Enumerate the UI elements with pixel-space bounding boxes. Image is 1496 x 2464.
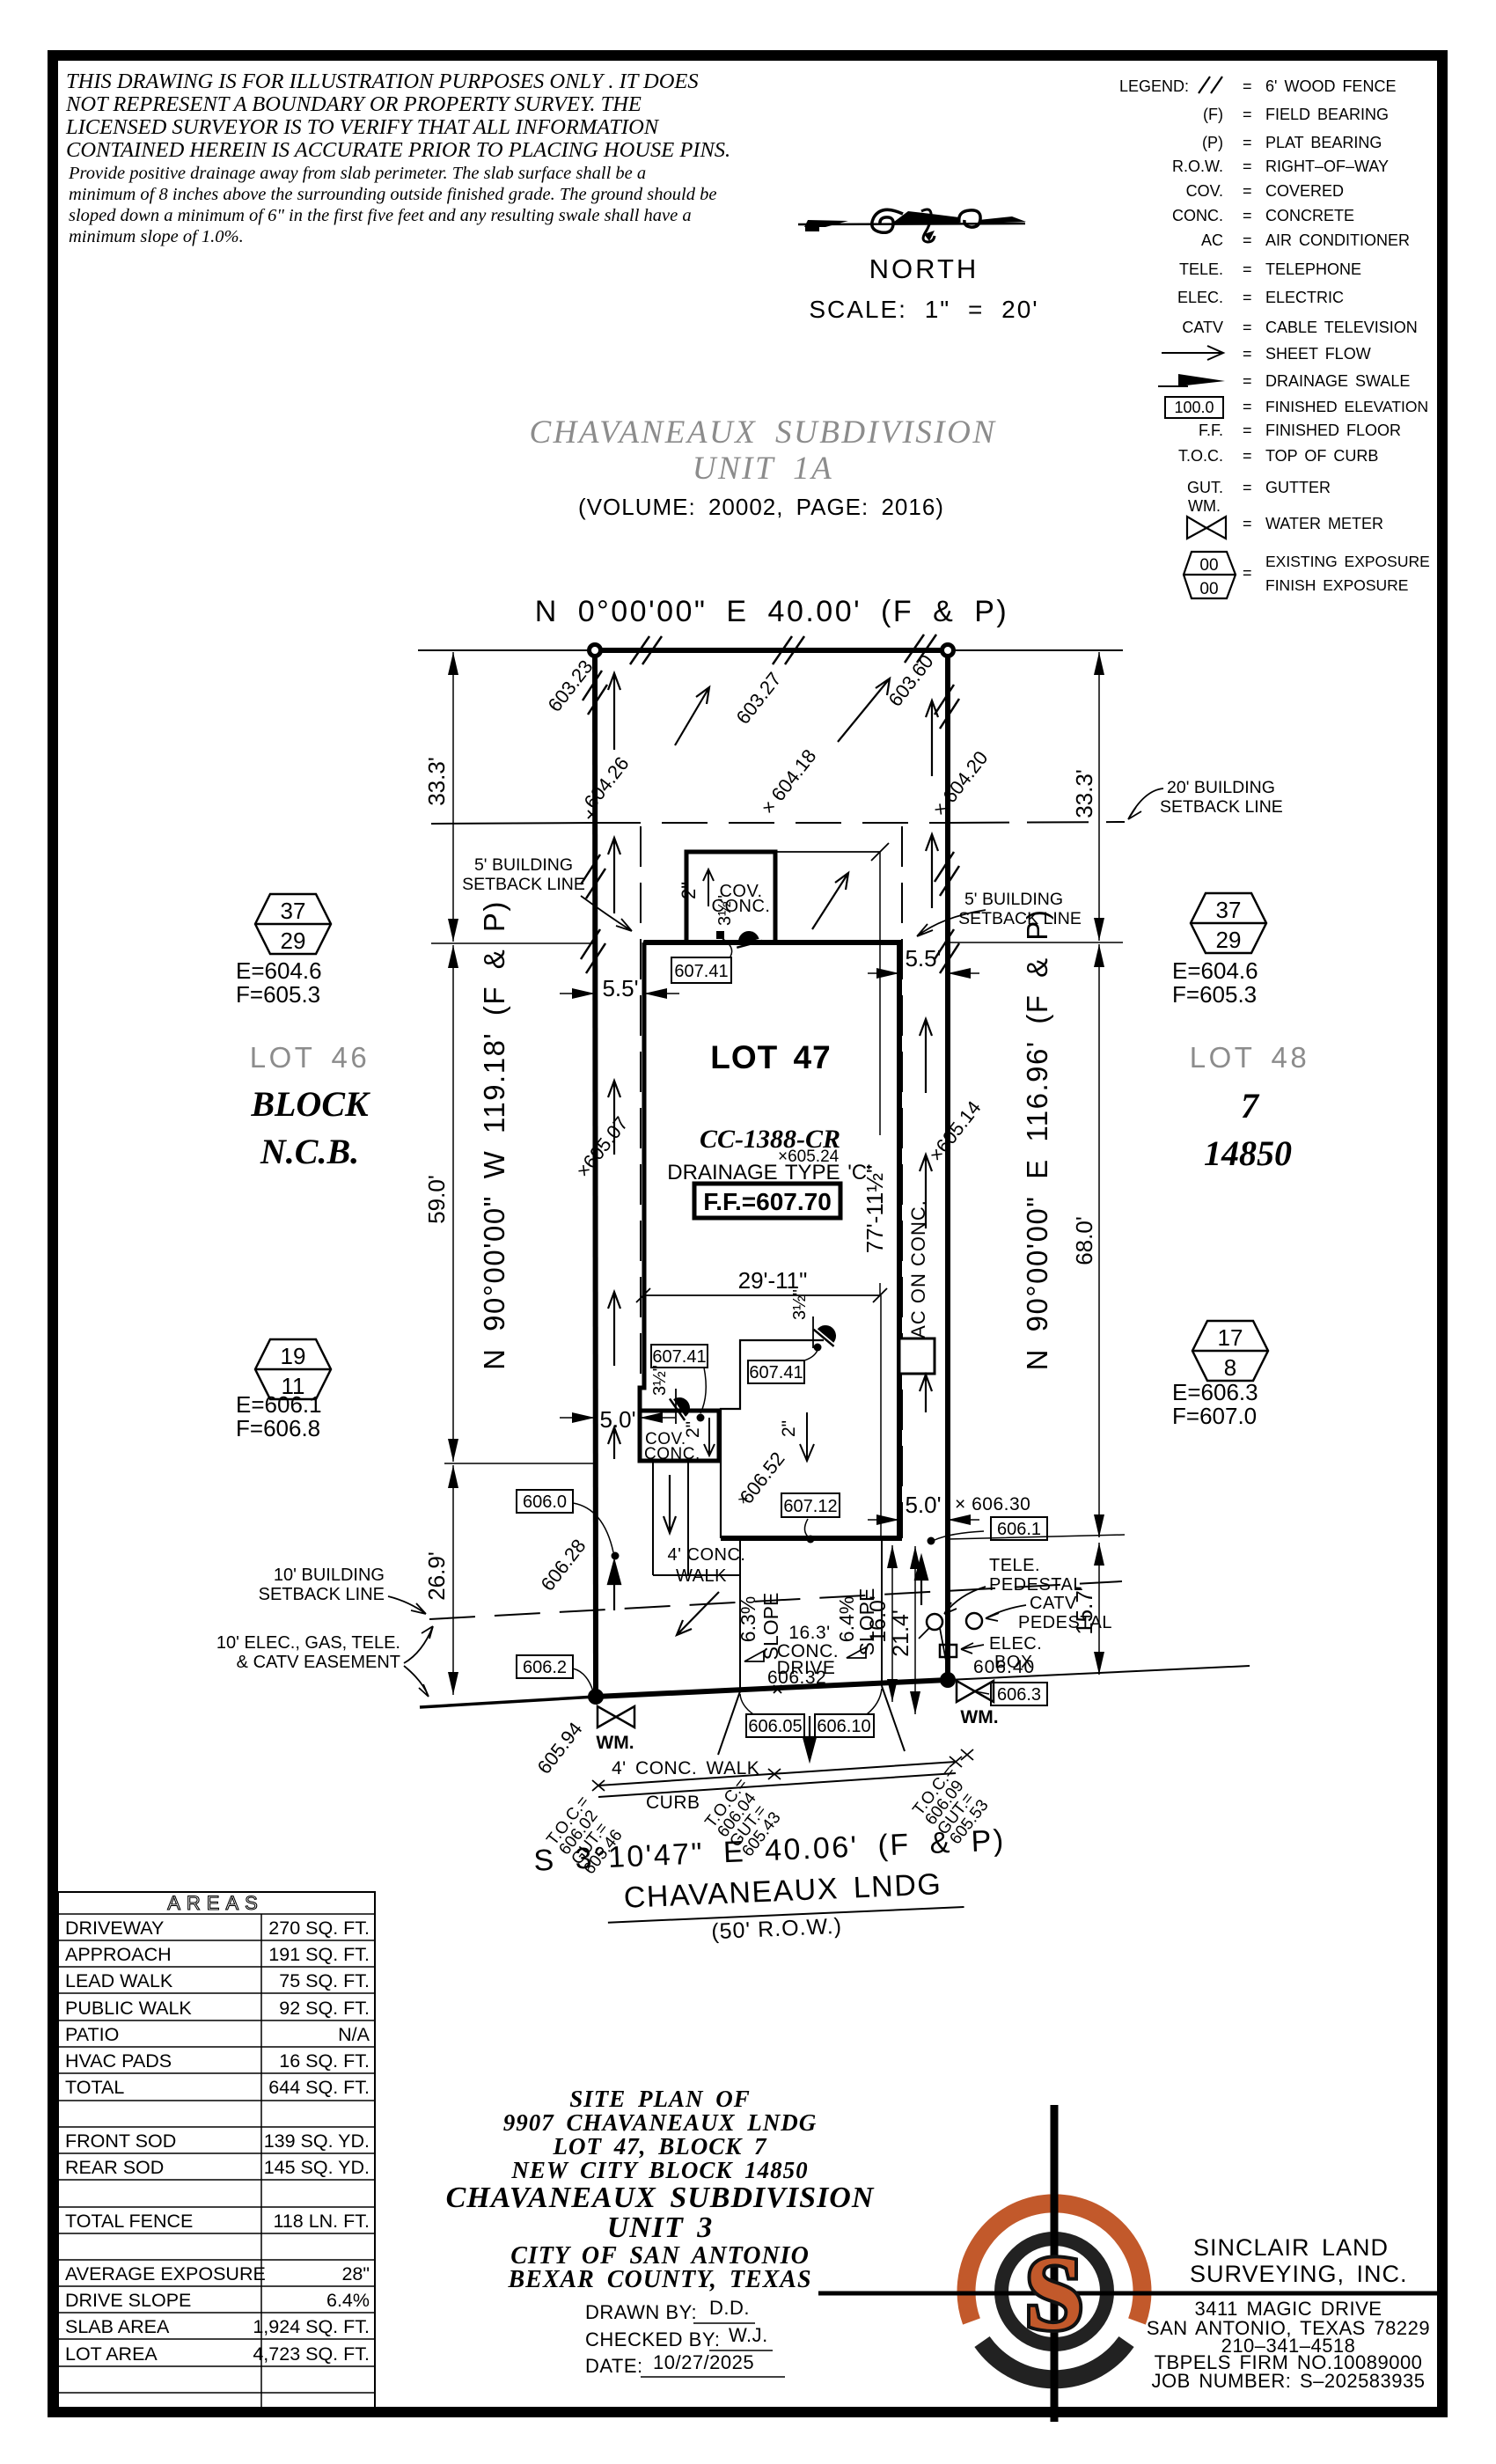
svg-text:=: = (1243, 564, 1252, 582)
svg-text:CATV: CATV (1182, 319, 1223, 336)
svg-text:29: 29 (281, 928, 306, 954)
svg-text:17: 17 (1218, 1324, 1243, 1351)
svg-text:CURB: CURB (646, 1793, 700, 1813)
svg-text:5' BUILDING: 5' BUILDING (474, 855, 573, 875)
svg-text:5.5': 5.5' (905, 945, 941, 972)
svg-text:=: = (1243, 207, 1252, 224)
svg-text:4' CONC. WALK: 4' CONC. WALK (612, 1758, 759, 1778)
svg-text:4,723 SQ. FT.: 4,723 SQ. FT. (253, 2343, 370, 2365)
svg-text:TOP OF CURB: TOP OF CURB (1265, 447, 1378, 465)
svg-text:5.5': 5.5' (602, 975, 638, 1001)
svg-text:=: = (1243, 182, 1252, 200)
svg-text:100.0: 100.0 (1174, 399, 1214, 416)
svg-text:603.27: 603.27 (732, 668, 786, 728)
svg-text:THIS DRAWING IS FOR ILLUSTRATI: THIS DRAWING IS FOR ILLUSTRATION PURPOSE… (66, 70, 699, 93)
svg-text:N 90°00'00" E 116.96' (F &: N 90°00'00" E 116.96' (F & P) (1021, 909, 1053, 1371)
svg-text:LEGEND:: LEGEND: (1119, 77, 1189, 95)
svg-text:606.05: 606.05 (748, 1717, 802, 1736)
svg-text:DRIVE: DRIVE (777, 1658, 836, 1678)
svg-text:606.2: 606.2 (523, 1658, 567, 1677)
svg-text:606.10: 606.10 (817, 1717, 870, 1736)
svg-text:LEAD WALK: LEAD WALK (65, 1970, 173, 1991)
svg-text:WM.: WM. (596, 1733, 634, 1753)
svg-text:607.41: 607.41 (652, 1347, 706, 1367)
svg-text:DRAINAGE SWALE: DRAINAGE SWALE (1265, 372, 1410, 390)
svg-text:& CATV EASEMENT: & CATV EASEMENT (237, 1653, 400, 1672)
svg-text:JOB NUMBER: S–202583935: JOB NUMBER: S–202583935 (1152, 2370, 1426, 2392)
svg-text:PEDESTAL: PEDESTAL (989, 1575, 1083, 1595)
svg-text:SURVEYING, INC.: SURVEYING, INC. (1190, 2261, 1408, 2287)
svg-text:N 0°00'00" E 40.00' (F & P: N 0°00'00" E 40.00' (F & P) (535, 595, 1008, 628)
svg-text:606.1: 606.1 (997, 1520, 1041, 1539)
svg-text:=: = (1243, 134, 1252, 151)
svg-text:603.23: 603.23 (544, 656, 598, 715)
svg-text:3½": 3½" (790, 1289, 810, 1320)
svg-text:606.28: 606.28 (537, 1535, 590, 1595)
svg-text:CONTAINED HEREIN IS ACCURATE P: CONTAINED HEREIN IS ACCURATE PRIOR TO PL… (66, 138, 730, 162)
svg-text:E=604.6: E=604.6 (1172, 957, 1258, 984)
svg-text:=: = (1243, 158, 1252, 175)
svg-text:=: = (1243, 372, 1252, 390)
svg-text:=: = (1243, 260, 1252, 278)
svg-text:BEXAR COUNTY, TEXAS: BEXAR COUNTY, TEXAS (507, 2266, 811, 2293)
svg-text:F=605.3: F=605.3 (236, 981, 320, 1008)
svg-text:139 SQ. YD.: 139 SQ. YD. (264, 2130, 370, 2152)
svg-text:FIELD BEARING: FIELD BEARING (1265, 106, 1389, 123)
svg-text:(F): (F) (1203, 106, 1223, 123)
svg-text:270 SQ. FT.: 270 SQ. FT. (268, 1918, 370, 1939)
svg-text:E=606.3: E=606.3 (1172, 1379, 1258, 1405)
svg-text:37: 37 (281, 898, 306, 924)
svg-text:NORTH: NORTH (869, 253, 979, 284)
svg-text:28": 28" (341, 2263, 370, 2284)
svg-text:× 606.30: × 606.30 (955, 1494, 1030, 1514)
svg-text:SLOPE: SLOPE (855, 1588, 878, 1656)
svg-text:PLAT BEARING: PLAT BEARING (1265, 134, 1382, 151)
svg-text:=: = (1243, 77, 1252, 95)
svg-text:CONC.: CONC. (644, 1445, 700, 1463)
svg-text:7: 7 (1241, 1086, 1260, 1126)
svg-text:APPROACH: APPROACH (65, 1944, 172, 1965)
svg-text:CONCRETE: CONCRETE (1265, 207, 1354, 224)
svg-text:=: = (1243, 231, 1252, 249)
svg-text:(50' R.O.W.): (50' R.O.W.) (711, 1914, 843, 1944)
svg-text:=: = (1243, 345, 1252, 363)
svg-text:PUBLIC WALK: PUBLIC WALK (65, 1998, 192, 2019)
svg-text:AREAS: AREAS (167, 1892, 264, 1914)
svg-text:×605.07: ×605.07 (572, 1112, 633, 1182)
svg-text:607.41: 607.41 (674, 962, 728, 981)
svg-text:FINISHED FLOOR: FINISHED FLOOR (1265, 422, 1401, 439)
svg-text:(P): (P) (1202, 134, 1223, 151)
svg-text:FINISHED ELEVATION: FINISHED ELEVATION (1265, 398, 1428, 415)
svg-text:6.4%: 6.4% (326, 2290, 370, 2311)
svg-text:WM.: WM. (960, 1707, 998, 1727)
svg-text:SLAB AREA: SLAB AREA (65, 2316, 170, 2337)
svg-text:LOT 48: LOT 48 (1190, 1041, 1309, 1074)
svg-text:T.O.C.: T.O.C. (1178, 447, 1223, 465)
svg-text:LICENSED SURVEYOR IS TO VERIFY: LICENSED SURVEYOR IS TO VERIFY THAT ALL … (65, 115, 660, 139)
svg-text:TELE.: TELE. (989, 1556, 1040, 1575)
svg-text:1,924 SQ. FT.: 1,924 SQ. FT. (253, 2316, 370, 2337)
svg-text:CATV: CATV (1030, 1594, 1077, 1613)
svg-text:16 SQ. FT.: 16 SQ. FT. (279, 2050, 370, 2072)
svg-text:LOT AREA: LOT AREA (65, 2343, 158, 2365)
svg-text:191 SQ. FT.: 191 SQ. FT. (268, 1944, 370, 1965)
svg-text:E=606.1: E=606.1 (236, 1391, 322, 1418)
svg-text:=: = (1243, 447, 1252, 465)
svg-text:10' ELEC., GAS, TELE.: 10' ELEC., GAS, TELE. (216, 1633, 400, 1653)
svg-text:=: = (1243, 515, 1252, 532)
svg-text:6' WOOD FENCE: 6' WOOD FENCE (1265, 77, 1396, 95)
svg-text:AVERAGE EXPOSURE: AVERAGE EXPOSURE (65, 2263, 266, 2284)
svg-text:DRAINAGE TYPE 'C': DRAINAGE TYPE 'C' (667, 1161, 870, 1184)
svg-text:BOX: BOX (994, 1653, 1033, 1672)
svg-text:603.60: 603.60 (884, 650, 938, 710)
svg-text:21.4': 21.4' (889, 1610, 913, 1656)
svg-text:DRAWN BY:: DRAWN BY: (585, 2301, 697, 2323)
svg-text:=: = (1243, 319, 1252, 336)
svg-text:DRIVE SLOPE: DRIVE SLOPE (65, 2290, 191, 2311)
svg-text:F=605.3: F=605.3 (1172, 981, 1257, 1008)
svg-text:SHEET FLOW: SHEET FLOW (1265, 345, 1371, 363)
svg-text:TELE.: TELE. (1179, 260, 1223, 278)
svg-text:145 SQ. YD.: 145 SQ. YD. (264, 2157, 370, 2178)
svg-text:606.0: 606.0 (523, 1492, 567, 1512)
svg-text:16.3': 16.3' (788, 1623, 830, 1643)
svg-text:59.0': 59.0' (423, 1175, 450, 1224)
svg-text:FRONT SOD: FRONT SOD (65, 2130, 176, 2152)
svg-text:SETBACK LINE: SETBACK LINE (259, 1585, 385, 1604)
svg-text:19: 19 (281, 1343, 306, 1369)
svg-text:N 90°00'00" W 119.18' (F &: N 90°00'00" W 119.18' (F & P) (478, 900, 510, 1370)
svg-text:644 SQ. FT.: 644 SQ. FT. (268, 2077, 370, 2098)
svg-text:F=607.0: F=607.0 (1172, 1403, 1257, 1429)
svg-text:10/27/2025: 10/27/2025 (653, 2351, 754, 2373)
svg-text:606.3: 606.3 (997, 1685, 1041, 1705)
svg-text:GUT.: GUT. (1187, 479, 1223, 496)
svg-text:UNIT 1A: UNIT 1A (693, 451, 833, 487)
svg-text:GUTTER: GUTTER (1265, 479, 1331, 496)
svg-text:92 SQ. FT.: 92 SQ. FT. (279, 1998, 370, 2019)
svg-text:EXISTING EXPOSURE: EXISTING EXPOSURE (1265, 553, 1430, 570)
svg-text:WM.: WM. (1188, 497, 1221, 515)
svg-text:20' BUILDING: 20' BUILDING (1167, 778, 1275, 797)
svg-text:ELECTRIC: ELECTRIC (1265, 289, 1344, 306)
svg-text:5' BUILDING: 5' BUILDING (964, 890, 1063, 909)
svg-text:UNIT 3: UNIT 3 (607, 2211, 714, 2244)
svg-text:5.0': 5.0' (905, 1492, 941, 1518)
svg-text:F.F.=607.70: F.F.=607.70 (703, 1188, 832, 1215)
svg-text:26.9': 26.9' (423, 1551, 450, 1601)
svg-text:=: = (1243, 289, 1252, 306)
svg-text:PATIO: PATIO (65, 2024, 119, 2045)
svg-text:SETBACK LINE: SETBACK LINE (462, 875, 585, 894)
svg-text:CONC.: CONC. (1172, 207, 1223, 224)
svg-text:4' CONC.: 4' CONC. (668, 1545, 746, 1565)
svg-text:CHAVANEAUX SUBDIVISION: CHAVANEAUX SUBDIVISION (529, 414, 996, 451)
svg-text:CHAVANEAUX LNDG: CHAVANEAUX LNDG (623, 1867, 942, 1915)
svg-text:=: = (1243, 106, 1252, 123)
svg-text:W.J.: W.J. (729, 2324, 768, 2346)
svg-text:COVERED: COVERED (1265, 182, 1344, 200)
svg-text:TOTAL FENCE: TOTAL FENCE (65, 2211, 193, 2232)
svg-text:68.0': 68.0' (1071, 1216, 1097, 1265)
svg-text:10' BUILDING: 10' BUILDING (274, 1566, 385, 1585)
svg-text:N/A: N/A (338, 2024, 370, 2045)
svg-text:SETBACK LINE: SETBACK LINE (1160, 797, 1283, 817)
svg-text:NEW CITY BLOCK 14850: NEW CITY BLOCK 14850 (510, 2157, 808, 2183)
svg-text:TOTAL: TOTAL (65, 2077, 124, 2098)
svg-text:=: = (1243, 479, 1252, 496)
svg-text:F=606.8: F=606.8 (236, 1415, 320, 1441)
svg-text:SITE PLAN OF: SITE PLAN OF (569, 2086, 751, 2112)
svg-text:CABLE TELEVISION: CABLE TELEVISION (1265, 319, 1418, 336)
svg-text:14850: 14850 (1204, 1133, 1292, 1173)
svg-text:CHAVANEAUX SUBDIVISION: CHAVANEAUX SUBDIVISION (446, 2182, 875, 2214)
svg-text:ELEC.: ELEC. (989, 1634, 1042, 1654)
svg-text:2": 2" (779, 1420, 799, 1437)
svg-text:DATE:: DATE: (585, 2355, 643, 2377)
svg-text:D.D.: D.D. (709, 2297, 750, 2319)
svg-text:× 604.18: × 604.18 (757, 745, 821, 818)
svg-text:N.C.B.: N.C.B. (260, 1132, 359, 1171)
svg-text:LOT 46: LOT 46 (250, 1041, 370, 1074)
svg-text:=: = (1243, 422, 1252, 439)
svg-text:TELEPHONE: TELEPHONE (1265, 260, 1361, 278)
svg-text:HVAC PADS: HVAC PADS (65, 2050, 172, 2072)
svg-text:PEDESTAL: PEDESTAL (1018, 1613, 1112, 1632)
svg-text:F.F.: F.F. (1199, 422, 1223, 439)
svg-text:×605.14: ×605.14 (925, 1096, 986, 1166)
svg-text:SCALE: 1" = 20': SCALE: 1" = 20' (809, 296, 1038, 323)
svg-text:5.0': 5.0' (599, 1406, 635, 1433)
svg-text:ELEC.: ELEC. (1177, 289, 1223, 306)
svg-text:LOT 47: LOT 47 (710, 1039, 831, 1075)
svg-text:R.O.W.: R.O.W. (1172, 158, 1223, 175)
svg-text:AIR CONDITIONER: AIR CONDITIONER (1265, 231, 1410, 249)
svg-text:00: 00 (1199, 580, 1218, 598)
svg-text:Provide positive drainage away: Provide positive drainage away from slab… (68, 164, 646, 183)
svg-text:118 LN. FT.: 118 LN. FT. (273, 2211, 370, 2232)
svg-text:minimum slope of 1.0%.: minimum slope of 1.0%. (69, 227, 244, 246)
svg-text:FINISH EXPOSURE: FINISH EXPOSURE (1265, 576, 1408, 594)
svg-text:WALK: WALK (676, 1566, 727, 1586)
svg-text:00: 00 (1199, 556, 1218, 575)
svg-text:LOT 47, BLOCK 7: LOT 47, BLOCK 7 (552, 2133, 767, 2160)
svg-text:33.3': 33.3' (423, 757, 450, 806)
svg-text:WATER METER: WATER METER (1265, 515, 1383, 532)
svg-text:3½": 3½" (650, 1365, 670, 1396)
svg-text:604.26: 604.26 (580, 752, 634, 812)
svg-text:DRIVEWAY: DRIVEWAY (65, 1918, 164, 1939)
svg-text:607.41: 607.41 (749, 1363, 803, 1382)
svg-text:SINCLAIR LAND: SINCLAIR LAND (1193, 2234, 1389, 2261)
svg-text:33.3': 33.3' (1071, 769, 1097, 818)
svg-text:× 604.20: × 604.20 (928, 747, 993, 820)
svg-text:607.12: 607.12 (783, 1497, 837, 1516)
svg-text:REAR SOD: REAR SOD (65, 2157, 164, 2178)
svg-text:8: 8 (1224, 1354, 1236, 1381)
svg-text:AC: AC (1201, 231, 1223, 249)
svg-text:9907 CHAVANEAUX LNDG: 9907 CHAVANEAUX LNDG (503, 2109, 818, 2136)
svg-text:RIGHT–OF–WAY: RIGHT–OF–WAY (1265, 158, 1389, 175)
svg-text:6.3%: 6.3% (737, 1596, 759, 1642)
svg-text:E=604.6: E=604.6 (236, 957, 322, 984)
svg-text:CHECKED BY:: CHECKED BY: (585, 2328, 720, 2350)
svg-text:=: = (1243, 398, 1252, 415)
svg-text:(VOLUME: 20002, PAGE: 2016): (VOLUME: 20002, PAGE: 2016) (578, 494, 944, 520)
svg-text:37: 37 (1216, 897, 1242, 923)
svg-text:75 SQ. FT.: 75 SQ. FT. (279, 1970, 370, 1991)
svg-text:29: 29 (1216, 927, 1242, 953)
svg-text:2": 2" (678, 882, 700, 899)
svg-text:CONC.: CONC. (712, 897, 771, 916)
svg-text:BLOCK: BLOCK (250, 1084, 370, 1124)
svg-text:minimum of 8 inches above the: minimum of 8 inches above the surroundin… (69, 185, 716, 204)
svg-text:NOT REPRESENT A BOUNDARY OR PR: NOT REPRESENT A BOUNDARY OR PROPERTY SUR… (65, 92, 642, 116)
svg-text:S: S (1025, 2234, 1084, 2351)
svg-text:605.94: 605.94 (533, 1718, 587, 1778)
svg-text:COV.: COV. (1186, 182, 1223, 200)
svg-text:sloped down a minimum of 6" in: sloped down a minimum of 6" in the first… (69, 206, 692, 225)
